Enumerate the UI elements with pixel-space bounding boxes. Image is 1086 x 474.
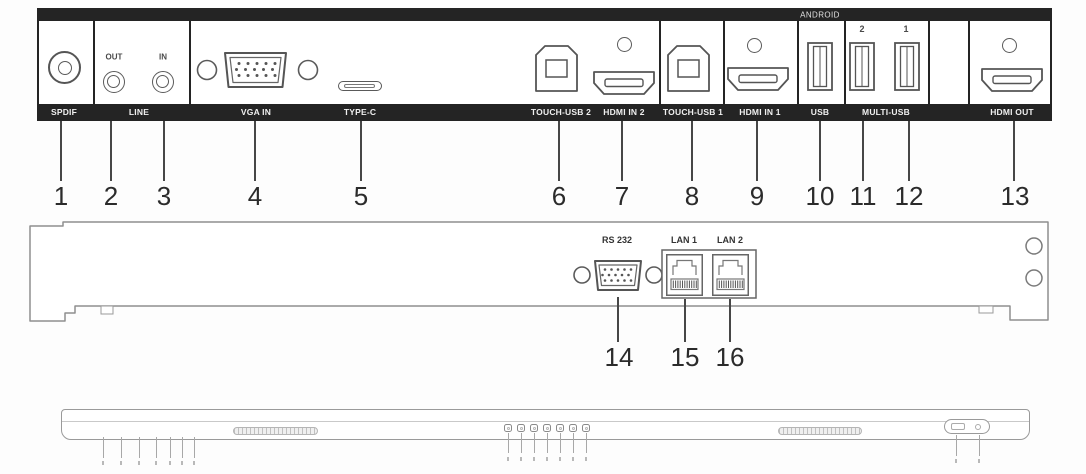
callout-15: 15 — [671, 344, 700, 370]
callout-mark — [169, 461, 171, 465]
front-button-1 — [504, 424, 512, 432]
callout-9: 9 — [750, 183, 764, 209]
callout-line — [60, 121, 62, 181]
callout-line-small — [573, 433, 574, 453]
callout-mark — [559, 457, 561, 461]
callout-10: 10 — [806, 183, 835, 209]
touch-usb-2-port — [536, 46, 577, 91]
callout-mark — [120, 461, 122, 465]
callout-line — [1013, 121, 1015, 181]
front-button-3 — [530, 424, 538, 432]
callout-6: 6 — [552, 183, 566, 209]
lan2-port — [713, 255, 749, 296]
callout-line — [360, 121, 362, 181]
power-indicator-icon — [975, 424, 981, 430]
callout-mark — [181, 461, 183, 465]
callout-16: 16 — [716, 344, 745, 370]
strip-label-multi-usb: MULTI-USB — [862, 107, 910, 117]
touch-usb-1-port — [668, 46, 709, 91]
strip-label-usb: USB — [811, 107, 830, 117]
callout-mark — [193, 461, 195, 465]
strip-label-line: LINE — [129, 107, 149, 117]
callout-line — [908, 121, 910, 181]
middle-panel — [30, 222, 1048, 321]
callout-mark — [955, 459, 957, 463]
multi-usb-port-1 — [895, 43, 919, 90]
callout-1: 1 — [54, 183, 68, 209]
line-in-label: IN — [159, 53, 167, 62]
callout-12: 12 — [895, 183, 924, 209]
callout-line-small — [194, 437, 195, 458]
callout-line-small — [547, 433, 548, 453]
callout-line-small — [979, 435, 980, 456]
callout-line — [691, 121, 693, 181]
multi-usb-2-number: 2 — [859, 24, 864, 34]
connector-graphics — [0, 0, 1086, 474]
callout-mark — [155, 461, 157, 465]
callout-line-small — [121, 437, 122, 458]
callout-11: 11 — [850, 183, 877, 209]
callout-13: 13 — [1001, 183, 1030, 209]
strip-label-type-c: TYPE-C — [344, 107, 376, 117]
bottom-panel-seam — [62, 421, 1029, 422]
callout-8: 8 — [685, 183, 699, 209]
usb-android-port — [808, 43, 832, 90]
speaker-grille-right — [778, 427, 862, 435]
callout-mark — [102, 461, 104, 465]
callout-line — [110, 121, 112, 181]
hdmi-in-1-port — [728, 68, 788, 90]
callout-line-small — [508, 433, 509, 453]
callout-mark — [572, 457, 574, 461]
callout-line — [617, 297, 619, 342]
callout-line — [254, 121, 256, 181]
rs232-label: RS 232 — [602, 235, 632, 245]
callout-line — [163, 121, 165, 181]
callout-mark — [533, 457, 535, 461]
front-button-6 — [569, 424, 577, 432]
speaker-grille-left — [233, 427, 318, 435]
callout-line-small — [560, 433, 561, 453]
front-button-5 — [556, 424, 564, 432]
strip-label-vga-in: VGA IN — [241, 107, 271, 117]
strip-label-spdif: SPDIF — [51, 107, 77, 117]
multi-usb-port-2 — [850, 43, 874, 90]
callout-line-small — [534, 433, 535, 453]
callout-line-small — [170, 437, 171, 458]
callout-line — [621, 121, 623, 181]
front-button-2 — [517, 424, 525, 432]
callout-line-small — [103, 437, 104, 458]
strip-label-touch-usb-2: TOUCH-USB 2 — [531, 107, 591, 117]
callout-4: 4 — [248, 183, 262, 209]
hdmi-in-2-port — [594, 72, 654, 94]
front-button-4 — [543, 424, 551, 432]
port-diagram: ANDROID OUT IN 2 1 SPDIF LINE VGA IN TYP… — [0, 0, 1086, 474]
callout-line-small — [139, 437, 140, 458]
callout-line-small — [156, 437, 157, 458]
callout-line — [729, 299, 731, 342]
strip-label-hdmi-in-2: HDMI IN 2 — [603, 107, 644, 117]
strip-label-hdmi-out: HDMI OUT — [990, 107, 1034, 117]
lan1-label: LAN 1 — [671, 235, 697, 245]
callout-mark — [520, 457, 522, 461]
callout-line-small — [586, 433, 587, 453]
callout-2: 2 — [104, 183, 118, 209]
callout-mark — [546, 457, 548, 461]
callout-mark — [585, 457, 587, 461]
strip-label-hdmi-in-1: HDMI IN 1 — [739, 107, 780, 117]
android-bar-label: ANDROID — [800, 11, 840, 20]
callout-line-small — [521, 433, 522, 453]
callout-line — [684, 299, 686, 342]
callout-7: 7 — [615, 183, 629, 209]
vga-connector — [198, 53, 318, 87]
callout-14: 14 — [605, 344, 634, 370]
ir-sensor-icon — [951, 423, 965, 430]
line-out-label: OUT — [106, 53, 123, 62]
callout-mark — [138, 461, 140, 465]
strip-label-touch-usb-1: TOUCH-USB 1 — [663, 107, 723, 117]
callout-line-small — [956, 435, 957, 456]
front-button-7 — [582, 424, 590, 432]
callout-line — [862, 121, 864, 181]
callout-line-small — [182, 437, 183, 458]
callout-mark — [978, 459, 980, 463]
callout-line — [756, 121, 758, 181]
callout-line — [819, 121, 821, 181]
hdmi-out-port — [982, 69, 1042, 91]
lan2-label: LAN 2 — [717, 235, 743, 245]
callout-line — [558, 121, 560, 181]
callout-mark — [507, 457, 509, 461]
lan1-port — [667, 255, 703, 296]
callout-5: 5 — [354, 183, 368, 209]
callout-3: 3 — [157, 183, 171, 209]
multi-usb-1-number: 1 — [903, 24, 908, 34]
